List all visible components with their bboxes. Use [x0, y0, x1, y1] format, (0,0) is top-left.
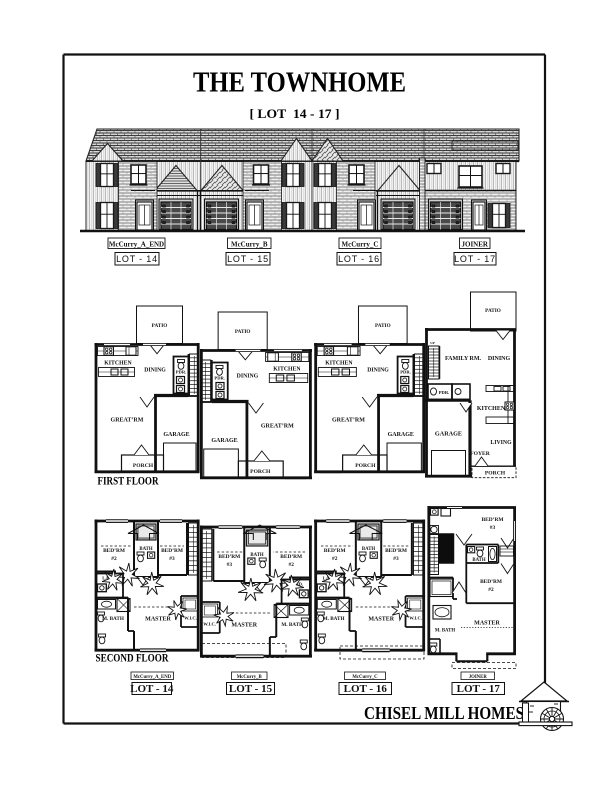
svg-text:PDR.: PDR. [439, 390, 450, 395]
svg-text:LOT - 16: LOT - 16 [338, 254, 380, 264]
svg-text:SECOND FLOOR: SECOND FLOOR [96, 653, 170, 665]
svg-text:DINING: DINING [237, 374, 259, 380]
svg-text:MASTER: MASTER [368, 617, 394, 623]
svg-text:BED’RM: BED’RM [218, 554, 240, 560]
svg-text:#3: #3 [490, 525, 496, 531]
svg-text:McCurry_B: McCurry_B [231, 240, 268, 248]
svg-text:BATH: BATH [472, 558, 486, 563]
svg-text:GARAGE: GARAGE [388, 432, 414, 438]
svg-text:KITCHEN: KITCHEN [104, 361, 132, 367]
svg-text:GREAT’RM: GREAT’RM [111, 418, 144, 424]
svg-text:FAMILY RM.: FAMILY RM. [445, 356, 482, 362]
svg-text:PATIO: PATIO [152, 323, 168, 329]
svg-text:DINING: DINING [367, 368, 389, 374]
svg-text:#3: #3 [227, 562, 233, 568]
svg-text:DINING: DINING [144, 368, 166, 374]
svg-text:McCurry_A_END: McCurry_A_END [109, 240, 164, 248]
svg-text:BED’RM: BED’RM [324, 548, 346, 554]
svg-text:LOT - 14: LOT - 14 [130, 683, 174, 695]
svg-text:LOT - 17: LOT - 17 [457, 683, 501, 695]
svg-text:BED’RM: BED’RM [480, 579, 502, 585]
svg-text:KITCHEN: KITCHEN [273, 367, 301, 373]
svg-text:DINING: DINING [488, 356, 511, 362]
svg-text:M. BATH: M. BATH [102, 616, 124, 622]
svg-text:McCurry_C: McCurry_C [342, 240, 379, 248]
svg-text:FOYER: FOYER [470, 451, 491, 457]
svg-text:BATH: BATH [362, 547, 376, 552]
svg-text:PATIO: PATIO [235, 329, 251, 335]
svg-text:LOT - 16: LOT - 16 [344, 683, 388, 695]
svg-text:BATH: BATH [250, 553, 264, 558]
svg-text:BATH: BATH [139, 547, 153, 552]
svg-text:PDR.: PDR. [176, 370, 187, 375]
svg-text:BED’RM: BED’RM [280, 554, 302, 560]
svg-text:CHISEL MILL HOMES: CHISEL MILL HOMES [364, 703, 524, 723]
svg-text:GARAGE: GARAGE [435, 431, 462, 438]
svg-text:BED’RM: BED’RM [103, 548, 125, 554]
svg-text:LOT - 14: LOT - 14 [116, 254, 158, 264]
svg-text:THE TOWNHOME: THE TOWNHOME [193, 68, 406, 99]
svg-text:#2: #2 [332, 556, 338, 562]
svg-text:JOINER: JOINER [469, 675, 488, 680]
svg-text:BED’RM: BED’RM [161, 548, 183, 554]
svg-text:[ LOT 14 - 17 ]: [ LOT 14 - 17 ] [250, 106, 340, 121]
svg-text:PORCH: PORCH [485, 471, 506, 477]
svg-text:GARAGE: GARAGE [163, 432, 189, 438]
svg-text:BED’RM: BED’RM [482, 517, 504, 523]
svg-text:JOINER: JOINER [462, 240, 489, 248]
svg-text:GREAT’RM: GREAT’RM [332, 418, 365, 424]
svg-text:KITCHEN: KITCHEN [477, 406, 506, 412]
svg-text:#2: #2 [289, 562, 295, 568]
svg-text:M. BATH: M. BATH [323, 616, 345, 622]
svg-text:PORCH: PORCH [133, 463, 154, 469]
svg-text:PORCH: PORCH [355, 463, 376, 469]
svg-text:W.I.C.: W.I.C. [203, 622, 216, 627]
svg-text:GREAT’RM: GREAT’RM [261, 424, 294, 430]
svg-text:MASTER: MASTER [231, 623, 257, 629]
svg-text:#2: #2 [111, 556, 117, 562]
svg-text:McCurry_C: McCurry_C [352, 675, 378, 680]
svg-text:M. BATH: M. BATH [281, 622, 303, 628]
svg-text:W.I.C.: W.I.C. [409, 616, 422, 621]
svg-text:McCurry_B: McCurry_B [237, 675, 263, 680]
svg-text:BED’RM: BED’RM [385, 548, 407, 554]
svg-text:PORCH: PORCH [250, 469, 271, 475]
svg-text:PDR.: PDR. [400, 370, 411, 375]
svg-text:LOT - 15: LOT - 15 [227, 254, 269, 264]
svg-text:W.I.C.: W.I.C. [184, 616, 197, 621]
svg-text:KITCHEN: KITCHEN [325, 361, 353, 367]
svg-text:MASTER: MASTER [145, 617, 171, 623]
svg-text:MASTER: MASTER [474, 621, 500, 627]
svg-text:PDR.: PDR. [214, 376, 225, 381]
svg-text:#2: #2 [488, 587, 494, 593]
svg-text:LOT - 15: LOT - 15 [229, 683, 273, 695]
svg-text:LOT - 17: LOT - 17 [454, 254, 496, 264]
svg-text:UP: UP [430, 341, 435, 345]
svg-text:GARAGE: GARAGE [211, 438, 237, 444]
svg-text:#3: #3 [169, 556, 175, 562]
svg-text:#3: #3 [393, 556, 399, 562]
svg-text:LIVING: LIVING [490, 440, 512, 446]
svg-text:M. BATH: M. BATH [435, 629, 455, 634]
svg-text:McCurry_A_END: McCurry_A_END [133, 675, 171, 680]
svg-text:FIRST FLOOR: FIRST FLOOR [98, 476, 160, 488]
svg-text:PATIO: PATIO [485, 308, 501, 314]
svg-text:PATIO: PATIO [375, 323, 391, 329]
